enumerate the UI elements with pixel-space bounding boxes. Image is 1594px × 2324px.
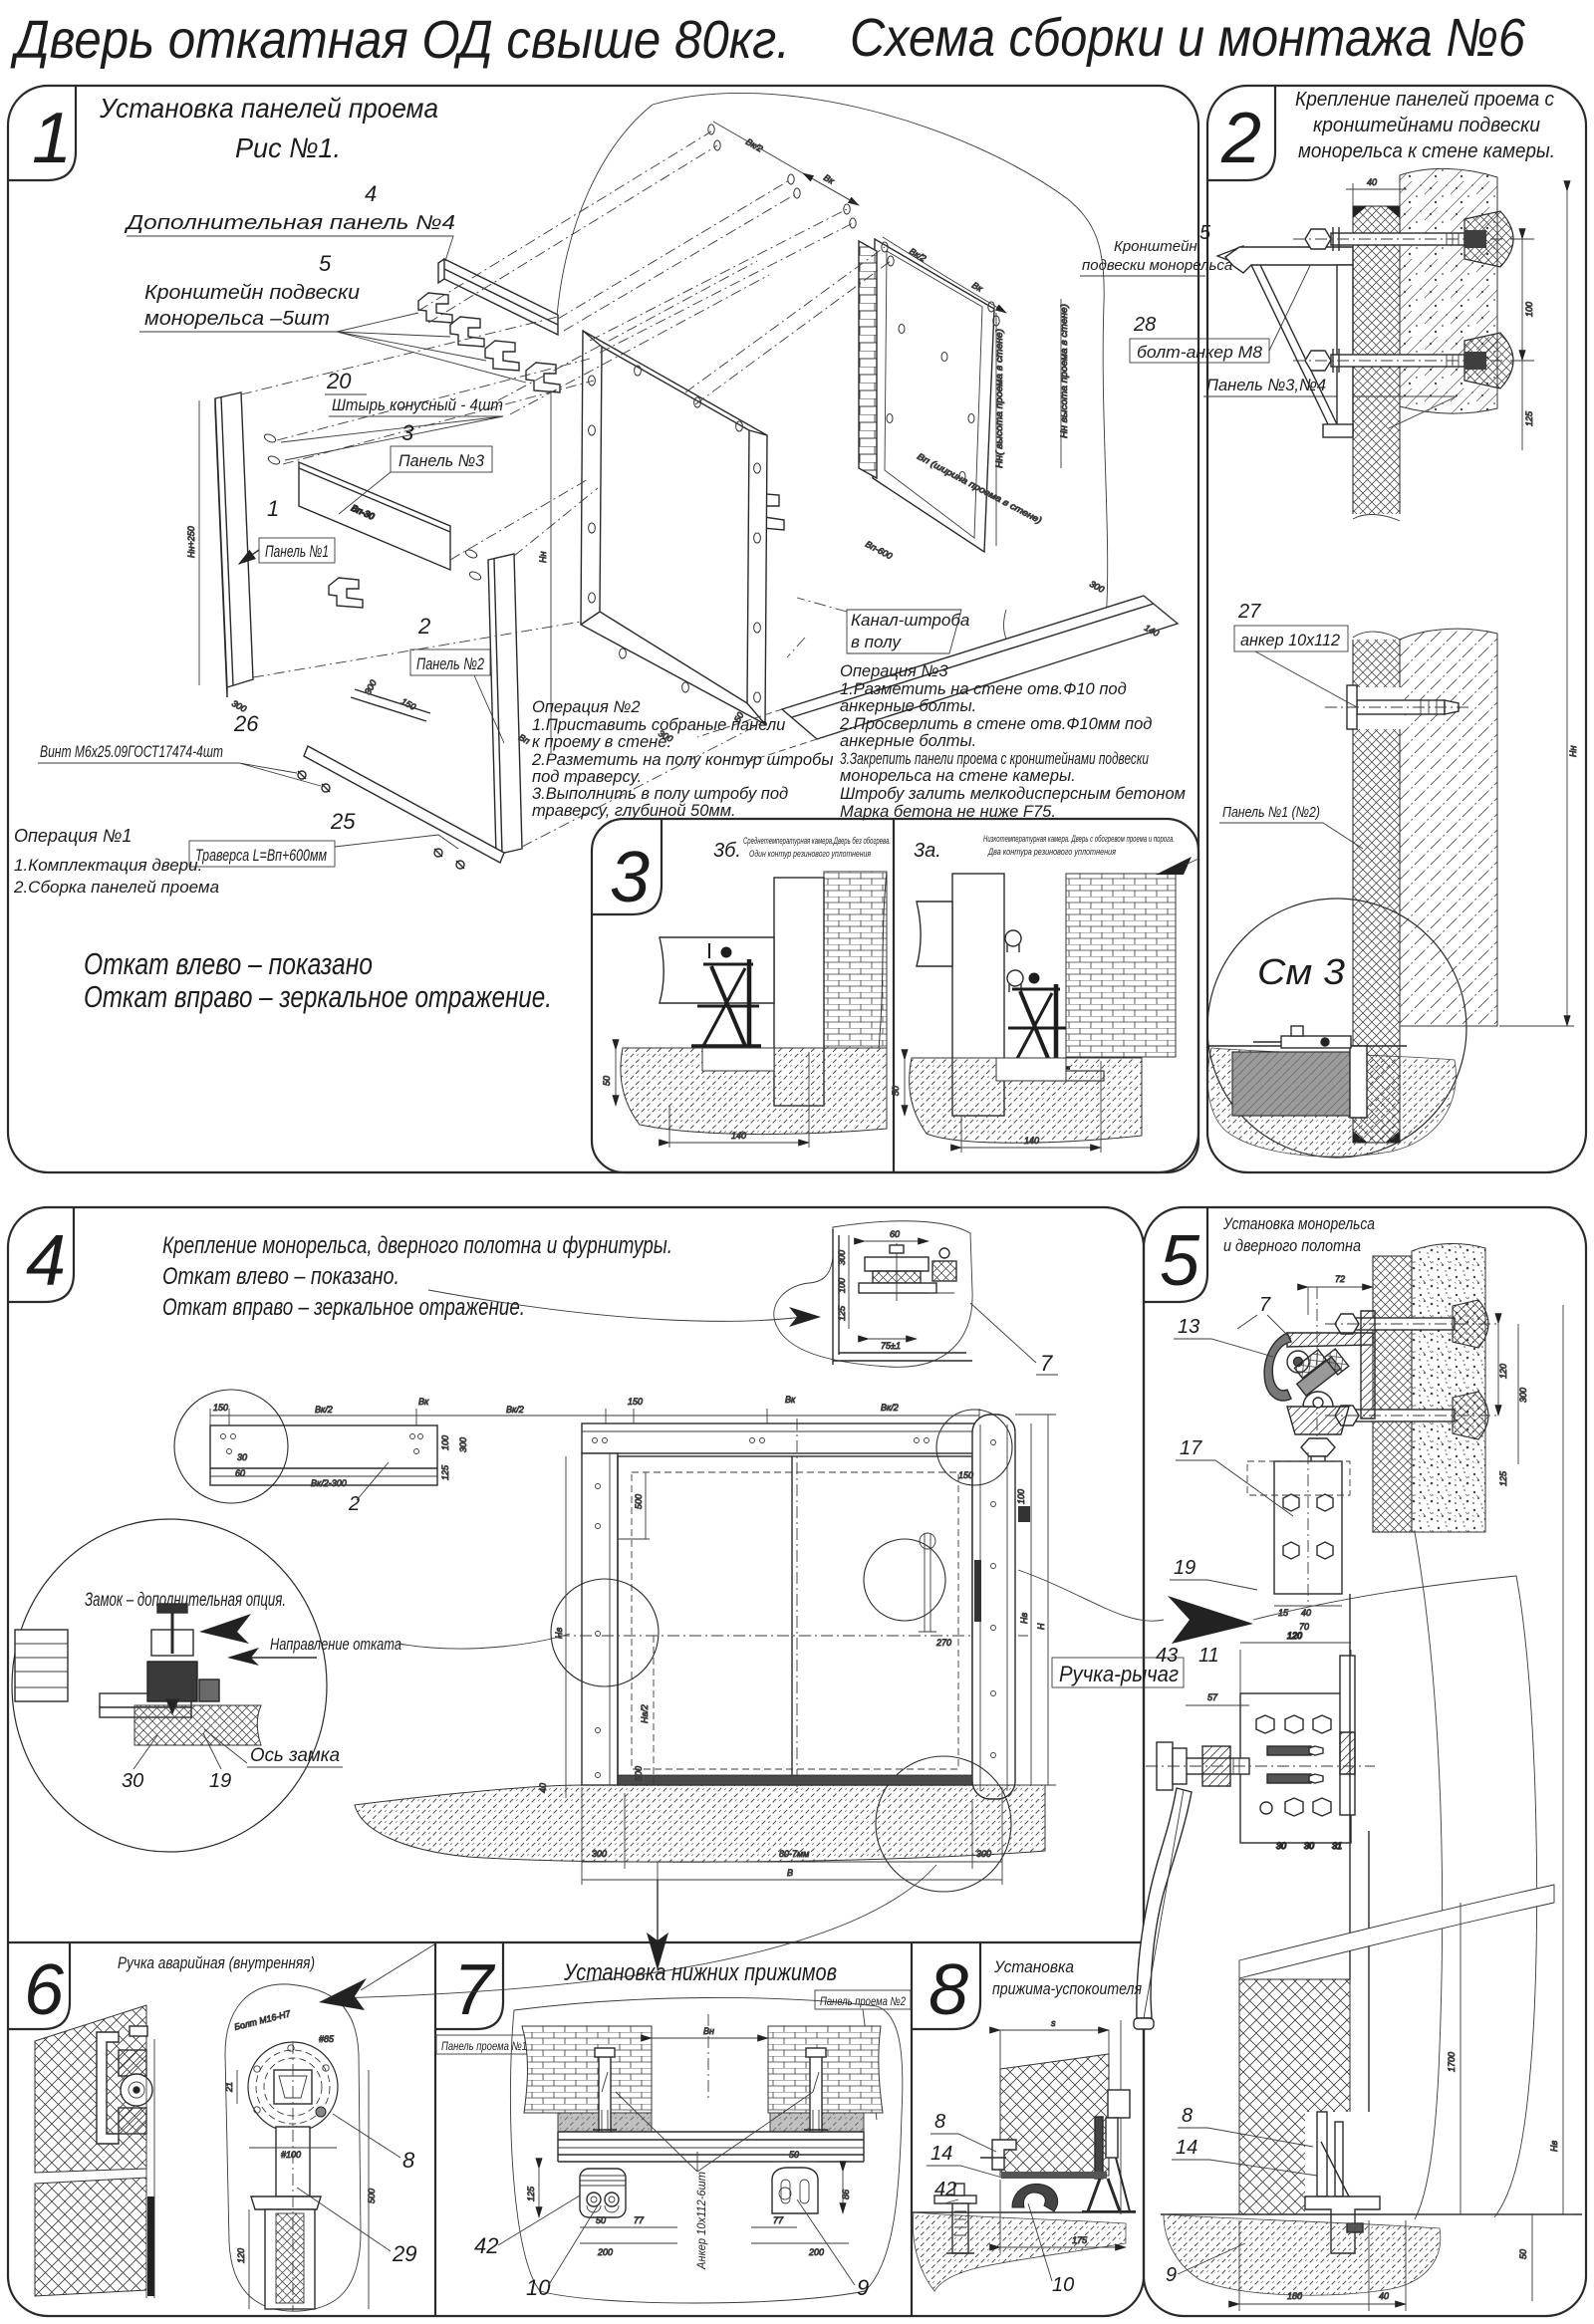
svg-text:5: 5 — [319, 251, 332, 276]
svg-text:1.Комплектация двери.: 1.Комплектация двери. — [14, 856, 202, 875]
svg-text:3.Выполнить в полу штробу под: 3.Выполнить в полу штробу под — [532, 785, 788, 803]
svg-text:50: 50 — [596, 2215, 606, 2225]
svg-text:11: 11 — [1198, 1645, 1219, 1667]
svg-text:Установка: Установка — [993, 1957, 1074, 1976]
svg-text:под траверсу.: под траверсу. — [532, 768, 642, 786]
svg-text:14: 14 — [930, 2143, 952, 2165]
svg-text:25: 25 — [330, 809, 356, 834]
svg-text:43: 43 — [1156, 1645, 1178, 1667]
svg-text:100: 100 — [837, 1278, 847, 1293]
svg-text:См 3: См 3 — [1257, 951, 1345, 992]
svg-text:Вк/2-300: Вк/2-300 — [311, 1478, 347, 1488]
svg-text:40: 40 — [1367, 177, 1377, 187]
svg-text:180: 180 — [1287, 2291, 1302, 2301]
svg-text:прижима-успокоителя: прижима-успокоителя — [992, 1979, 1142, 1998]
svg-text:75±1: 75±1 — [881, 1341, 901, 1351]
svg-text:10: 10 — [526, 2275, 551, 2300]
svg-text:Панель №3,№4: Панель №3,№4 — [1206, 376, 1326, 394]
svg-text:8: 8 — [934, 2111, 945, 2133]
svg-text:Нн высота проема в стене): Нн высота проема в стене) — [1059, 304, 1069, 438]
svg-text:кронштейнами подвески: кронштейнами подвески — [1313, 115, 1540, 136]
svg-text:13: 13 — [1178, 1316, 1199, 1338]
svg-text:4: 4 — [26, 1221, 66, 1301]
svg-text:9: 9 — [1166, 2264, 1177, 2286]
svg-text:200: 200 — [597, 2247, 613, 2257]
svg-text:Ручка аварийная (внутренняя): Ручка аварийная (внутренняя) — [118, 1953, 315, 1972]
svg-text:30: 30 — [122, 1770, 143, 1792]
svg-text:40: 40 — [538, 1783, 548, 1793]
svg-text:60: 60 — [890, 1229, 900, 1239]
svg-text:125: 125 — [1498, 1470, 1508, 1486]
svg-text:#100: #100 — [281, 2150, 301, 2160]
svg-text:1700: 1700 — [1447, 2052, 1457, 2072]
svg-text:монорельса на стене камеры.: монорельса на стене камеры. — [840, 767, 1076, 785]
svg-text:Панель №1 (№2): Панель №1 (№2) — [1222, 804, 1320, 821]
svg-text:2: 2 — [348, 1493, 360, 1515]
svg-text:300: 300 — [592, 1849, 607, 1859]
svg-text:В: В — [787, 1868, 793, 1878]
svg-text:300: 300 — [976, 1849, 991, 1859]
svg-text:200: 200 — [808, 2247, 824, 2257]
svg-text:2.Разметить на полу контур штр: 2.Разметить на полу контур штробы — [531, 751, 833, 769]
svg-text:3: 3 — [610, 838, 650, 917]
svg-text:60: 60 — [235, 1468, 245, 1478]
svg-text:Откат влево – показано.: Откат влево – показано. — [162, 1263, 399, 1290]
svg-text:Нв/2: Нв/2 — [640, 1704, 650, 1723]
svg-text:2.Просверлить в стене отв.Ф10м: 2.Просверлить в стене отв.Ф10мм под — [839, 715, 1152, 733]
svg-text:30: 30 — [1276, 1841, 1286, 1851]
svg-text:80-7мм: 80-7мм — [779, 1849, 809, 1859]
svg-text:Нв: Нв — [1019, 1613, 1029, 1624]
svg-text:19: 19 — [1174, 1557, 1195, 1579]
svg-text:7: 7 — [1259, 1294, 1271, 1316]
svg-text:77: 77 — [634, 2215, 645, 2225]
svg-text:40: 40 — [1379, 2291, 1389, 2301]
svg-text:Среднетемпературная камера.Две: Среднетемпературная камера.Дверь без обо… — [743, 836, 891, 846]
svg-text:17: 17 — [1180, 1437, 1202, 1459]
svg-text:1: 1 — [267, 496, 279, 521]
svg-text:Вк/2: Вк/2 — [506, 1405, 524, 1415]
svg-text:5: 5 — [1199, 222, 1211, 244]
svg-text:6: 6 — [24, 1950, 65, 2030]
svg-text:Нн( высота проема в стене): Нн( высота проема в стене) — [994, 329, 1004, 468]
svg-text:Вк: Вк — [785, 1395, 796, 1405]
svg-text:31: 31 — [1332, 1841, 1342, 1851]
svg-text:300: 300 — [458, 1437, 468, 1452]
svg-text:8: 8 — [929, 1950, 968, 2030]
svg-text:Вн: Вн — [703, 2026, 714, 2036]
svg-text:120: 120 — [236, 2248, 246, 2263]
svg-text:500: 500 — [367, 2189, 377, 2203]
svg-text:140: 140 — [731, 1131, 746, 1141]
svg-text:Марка бетона не ниже F75.: Марка бетона не ниже F75. — [840, 803, 1056, 821]
svg-text:140: 140 — [1024, 1136, 1039, 1146]
svg-text:4: 4 — [365, 181, 377, 206]
svg-text:42: 42 — [934, 2179, 956, 2200]
svg-text:300: 300 — [1518, 1388, 1528, 1403]
svg-text:2.Сборка панелей проема: 2.Сборка панелей проема — [13, 878, 219, 897]
svg-text:Штробу залить мелкодисперсным: Штробу залить мелкодисперсным бетоном — [840, 785, 1186, 803]
svg-text:#85: #85 — [319, 2034, 335, 2044]
svg-text:Кронштейн подвески: Кронштейн подвески — [144, 282, 360, 304]
svg-text:Операция №1: Операция №1 — [14, 826, 132, 846]
svg-text:Направление отката: Направление отката — [270, 1635, 401, 1654]
svg-text:Нн: Нн — [1568, 746, 1578, 757]
svg-text:50: 50 — [891, 1086, 901, 1096]
svg-text:Низкотемпературная камера. Две: Низкотемпературная камера. Дверь с обогр… — [983, 834, 1175, 844]
svg-text:19: 19 — [209, 1770, 231, 1792]
svg-text:Н: Н — [1036, 1623, 1046, 1630]
svg-text:Анкер 10х112-6шт: Анкер 10х112-6шт — [694, 2172, 708, 2270]
svg-text:300: 300 — [837, 1250, 847, 1265]
svg-text:150: 150 — [958, 1470, 973, 1480]
svg-text:Рис №1.: Рис №1. — [235, 132, 341, 163]
svg-text:7: 7 — [1040, 1351, 1053, 1376]
svg-text:26: 26 — [233, 711, 259, 736]
svg-text:3: 3 — [401, 420, 414, 445]
svg-text:1: 1 — [32, 99, 72, 178]
svg-text:30: 30 — [1304, 1841, 1314, 1851]
svg-text:Панель №1: Панель №1 — [265, 542, 329, 561]
svg-text:Нв: Нв — [1549, 2141, 1559, 2152]
svg-text:20: 20 — [326, 369, 352, 393]
svg-text:подвески монорельса: подвески монорельса — [1082, 257, 1232, 274]
svg-text:Панель №3: Панель №3 — [398, 451, 485, 470]
svg-text:14: 14 — [1176, 2137, 1197, 2159]
svg-text:21: 21 — [224, 2082, 234, 2093]
svg-text:100: 100 — [1016, 1489, 1026, 1504]
svg-text:150: 150 — [628, 1397, 643, 1407]
svg-text:9: 9 — [857, 2275, 869, 2300]
svg-text:Винт М6х25.09ГОСТ17474-4шт: Винт М6х25.09ГОСТ17474-4шт — [40, 742, 223, 761]
svg-text:Кронштейн: Кронштейн — [1114, 238, 1197, 255]
svg-text:Установка панелей проема: Установка панелей проема — [99, 93, 438, 124]
svg-text:Канал-штроба: Канал-штроба — [851, 611, 969, 630]
svg-text:Крепление панелей проема с: Крепление панелей проема с — [1295, 89, 1554, 111]
svg-text:500: 500 — [634, 1494, 644, 1509]
svg-text:Установка монорельса: Установка монорельса — [1222, 1214, 1375, 1233]
svg-text:Нн: Нн — [538, 552, 548, 563]
svg-text:50: 50 — [1518, 2249, 1528, 2259]
svg-text:100: 100 — [1524, 302, 1534, 317]
svg-text:29: 29 — [392, 2241, 416, 2266]
svg-text:Операция №3: Операция №3 — [840, 662, 948, 680]
svg-text:анкер 10x112: анкер 10x112 — [1240, 631, 1341, 649]
svg-text:Один контур резинового уплотне: Один контур резинового уплотнения — [749, 849, 871, 859]
svg-text:125: 125 — [526, 2186, 536, 2201]
svg-text:s: s — [1051, 2018, 1056, 2028]
svg-text:Штырь конусный - 4шт: Штырь конусный - 4шт — [332, 395, 503, 414]
svg-text:к проему в стене.: к проему в стене. — [532, 733, 671, 751]
svg-text:Вк/2: Вк/2 — [881, 1403, 899, 1413]
svg-text:Панель №2: Панель №2 — [416, 654, 484, 673]
svg-text:Вк: Вк — [418, 1397, 429, 1407]
svg-text:125: 125 — [1524, 410, 1534, 426]
svg-text:монорельса –5шт: монорельса –5шт — [144, 308, 330, 330]
svg-text:Нн+250: Нн+250 — [186, 526, 196, 558]
svg-text:125: 125 — [440, 1464, 450, 1480]
svg-text:Панель проема №1: Панель проема №1 — [441, 2039, 527, 2053]
svg-text:72: 72 — [1335, 1274, 1345, 1284]
svg-text:150: 150 — [213, 1403, 228, 1413]
svg-text:и дверного полотна: и дверного полотна — [1223, 1236, 1361, 1255]
svg-text:500: 500 — [634, 1766, 644, 1781]
svg-text:120: 120 — [1498, 1364, 1508, 1379]
svg-text:Откат влево – показано: Откат влево – показано — [84, 946, 373, 981]
svg-text:Операция №2: Операция №2 — [532, 698, 641, 716]
svg-text:50: 50 — [789, 2150, 799, 2160]
svg-text:Два контура резинового уплотне: Два контура резинового уплотнения — [987, 847, 1116, 857]
svg-text:1.Приставить собраные панели: 1.Приставить собраные панели — [532, 716, 785, 734]
svg-text:3.Закрепить панели проема с кр: 3.Закрепить панели проема с кронштейнами… — [840, 750, 1149, 768]
svg-text:3б.: 3б. — [713, 840, 741, 862]
svg-text:Дверь откатная ОД свыше 80кг.: Дверь откатная ОД свыше 80кг. — [10, 10, 790, 70]
svg-text:50: 50 — [602, 1076, 612, 1086]
svg-text:Откат вправо – зеркальное отра: Откат вправо – зеркальное отражение. — [84, 979, 552, 1014]
svg-text:Схема сборки и монтажа №6: Схема сборки и монтажа №6 — [850, 8, 1526, 68]
svg-text:8: 8 — [1182, 2105, 1193, 2127]
svg-text:125: 125 — [837, 1305, 847, 1321]
svg-text:болт-анкер М8: болт-анкер М8 — [1137, 343, 1263, 362]
svg-text:28: 28 — [1133, 314, 1156, 336]
svg-text:Откат вправо – зеркальное отра: Откат вправо – зеркальное отражение. — [162, 1294, 525, 1321]
svg-text:270: 270 — [935, 1638, 951, 1648]
svg-text:8: 8 — [402, 2148, 415, 2173]
svg-text:42: 42 — [474, 2233, 498, 2258]
svg-text:Траверса L=Вп+600мм: Траверса L=Вп+600мм — [195, 846, 327, 865]
svg-text:30: 30 — [237, 1452, 247, 1462]
svg-text:анкерные болты.: анкерные болты. — [840, 697, 976, 715]
svg-text:Установка нижних прижимов: Установка нижних прижимов — [563, 1959, 837, 1986]
svg-text:40: 40 — [1301, 1608, 1311, 1618]
svg-text:Панель проема №2: Панель проема №2 — [820, 1994, 906, 2008]
svg-text:Дополнительная панель №4: Дополнительная панель №4 — [125, 212, 455, 234]
svg-text:100: 100 — [440, 1435, 450, 1450]
svg-text:траверсу, глубиной 50мм.: траверсу, глубиной 50мм. — [532, 802, 736, 820]
svg-text:120: 120 — [1287, 1631, 1302, 1641]
svg-text:Крепление монорельса, дверного: Крепление монорельса, дверного полотна и… — [162, 1232, 672, 1259]
svg-text:1.Разметить на стене отв.Ф10 п: 1.Разметить на стене отв.Ф10 под — [840, 680, 1127, 698]
svg-text:Ось замка: Ось замка — [250, 1745, 340, 1766]
svg-text:Вк/2: Вк/2 — [315, 1405, 333, 1415]
svg-text:монорельса к стене камеры.: монорельса к стене камеры. — [1298, 140, 1555, 162]
svg-text:5: 5 — [1160, 1221, 1200, 1301]
svg-text:175: 175 — [1072, 2235, 1088, 2245]
svg-text:анкерные болты.: анкерные болты. — [840, 732, 976, 750]
svg-text:27: 27 — [1237, 601, 1261, 623]
svg-text:10: 10 — [1052, 2274, 1074, 2296]
svg-text:57: 57 — [1207, 1692, 1218, 1702]
svg-text:3а.: 3а. — [914, 840, 941, 862]
svg-text:2: 2 — [417, 614, 430, 639]
svg-text:86: 86 — [841, 2190, 851, 2199]
svg-text:2: 2 — [1220, 99, 1261, 178]
svg-text:77: 77 — [773, 2215, 784, 2225]
svg-text:в полу: в полу — [851, 633, 902, 651]
